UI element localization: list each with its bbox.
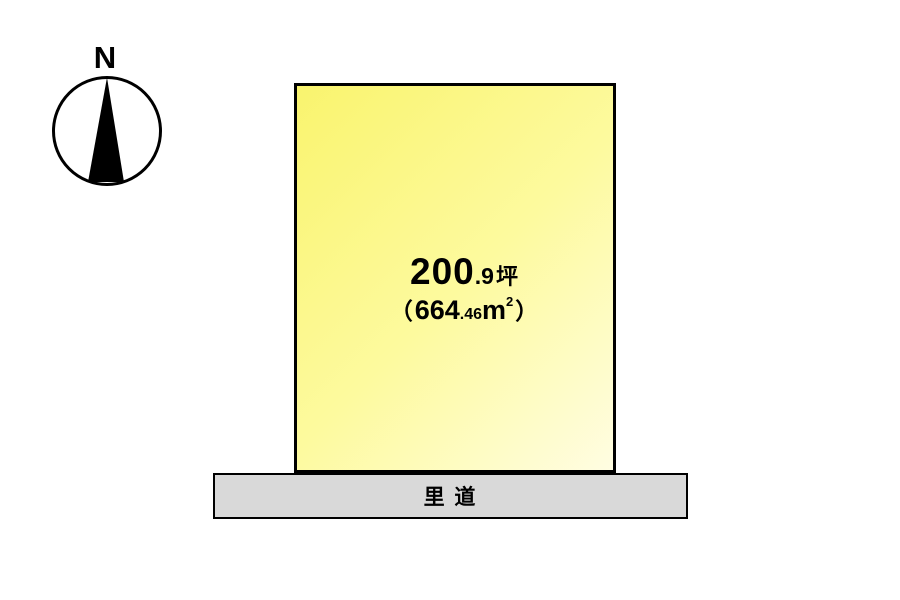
compass-north-label: N xyxy=(94,40,116,75)
compass: N xyxy=(45,40,169,190)
land-plot-diagram: N 200.9坪 （664.46m2） 里 道 xyxy=(0,0,900,600)
parcel-area-tsubo-whole: 200 xyxy=(410,253,475,290)
parcel-area-tsubo-unit: 坪 xyxy=(496,266,518,288)
parcel-area-tsubo-decimal: .9 xyxy=(475,265,494,288)
road-strip: 里 道 xyxy=(213,473,688,519)
north-arrow-icon xyxy=(88,78,124,183)
parcel-area-sqm-whole: 664 xyxy=(415,297,460,324)
road-label: 里 道 xyxy=(424,481,478,511)
parcel-area-tsubo: 200.9坪 xyxy=(390,253,539,290)
parcel-area-sqm-close-paren: ） xyxy=(515,300,538,323)
parcel-area-block: 200.9坪 （664.46m2） xyxy=(390,253,539,324)
parcel-area-sqm-decimal: .46 xyxy=(460,307,482,323)
land-parcel: 200.9坪 （664.46m2） xyxy=(294,83,616,473)
parcel-area-sqm-unit-exponent: 2 xyxy=(506,295,513,308)
parcel-area-sqm-open-paren: （ xyxy=(390,300,413,323)
parcel-area-sqm: （664.46m2） xyxy=(390,297,539,324)
parcel-area-sqm-unit: m xyxy=(482,297,506,324)
